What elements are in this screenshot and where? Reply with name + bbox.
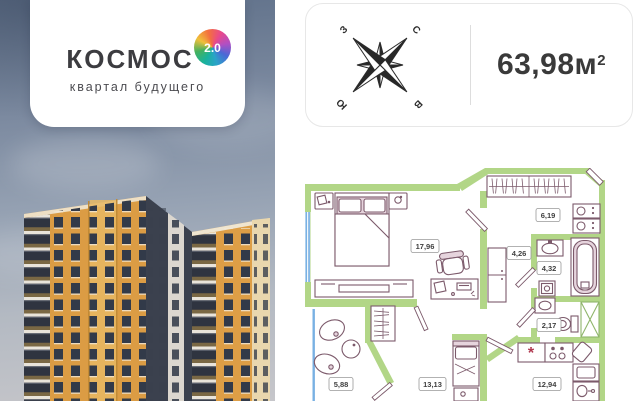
area-unit: м: [575, 48, 598, 81]
tall-cabinet-icon: [488, 248, 506, 302]
compass-east-label: В: [411, 97, 424, 110]
stove-icon: [545, 343, 573, 362]
washer-dryer-icon: [573, 204, 600, 233]
compass-west-label: З: [338, 24, 350, 36]
room-area-label-bathroom: 4,32: [537, 262, 561, 275]
area-info-card: З С Ю В 63,98м2: [305, 3, 633, 127]
version-badge: 2.0: [194, 29, 231, 66]
left-tower: [24, 196, 146, 401]
shaft-icon: [581, 302, 599, 337]
svg-text:4,26: 4,26: [512, 249, 527, 258]
floor-plan: * 17,96 6,19 4,26 4,32 2,17 5,88 13,13 1…: [305, 168, 605, 401]
compass-south-label: Ю: [335, 96, 350, 111]
bath-sink-icon: [537, 240, 563, 256]
room-area-label-bedroom: 17,96: [411, 240, 439, 253]
door-leaf: [466, 209, 488, 231]
listing-banner: КОСМОС 2.0 квартал будущего: [0, 0, 640, 401]
double-bed-icon: [335, 193, 389, 266]
building-photo: КОСМОС 2.0 квартал будущего: [0, 0, 275, 401]
oven-icon: [573, 364, 599, 381]
desk-chair-icon: [435, 250, 470, 276]
svg-text:12,94: 12,94: [538, 380, 558, 389]
kitchen-symbol: *: [528, 345, 535, 362]
door-leaf: [517, 308, 536, 328]
compass-rose-icon: З С Ю В: [328, 13, 432, 117]
wardrobe-icon: [487, 176, 571, 197]
cutting-board-icon: [571, 341, 593, 363]
compass-north-label: С: [409, 24, 422, 37]
room-area-label-kitchen: 12,94: [533, 378, 561, 391]
right-tower: [192, 218, 270, 401]
nightstand-icon: [315, 193, 333, 209]
washing-machine-icon: [539, 281, 555, 296]
room-area-label-room2: 13,13: [419, 378, 446, 391]
room-area-label-hallway: 6,19: [536, 209, 560, 222]
loggia-furniture-icon: [312, 316, 360, 377]
middle-tower: [146, 196, 192, 401]
door-leaf: [414, 306, 428, 330]
wardrobe-2-icon: [371, 306, 395, 341]
svg-text:4,32: 4,32: [542, 264, 557, 273]
desk-icon: [431, 279, 478, 299]
nightstand-icon: [389, 193, 407, 209]
area-value: 63,98: [497, 48, 575, 81]
apartment-area: 63,98м2: [471, 48, 632, 82]
area-sup: 2: [597, 52, 606, 69]
door-leaf: [372, 382, 392, 400]
dresser-icon: [315, 280, 413, 297]
room-area-label-wc: 2,17: [537, 319, 561, 332]
svg-text:2,17: 2,17: [542, 321, 557, 330]
svg-text:5,88: 5,88: [334, 380, 349, 389]
door-leaf: [516, 268, 536, 288]
wc-sink-icon: [535, 298, 555, 313]
room-area-label-loggia: 5,88: [329, 378, 353, 391]
brand-tagline: квартал будущего: [30, 80, 245, 94]
svg-text:13,13: 13,13: [423, 380, 442, 389]
logo-card: КОСМОС 2.0 квартал будущего: [30, 0, 245, 127]
room-area-label-corridor: 4,26: [507, 247, 531, 260]
bathtub-icon: [571, 238, 599, 296]
svg-text:17,96: 17,96: [416, 242, 435, 251]
kitchen-sink-icon: [573, 382, 599, 401]
single-bed-icon: [453, 341, 479, 401]
svg-text:6,19: 6,19: [541, 211, 556, 220]
